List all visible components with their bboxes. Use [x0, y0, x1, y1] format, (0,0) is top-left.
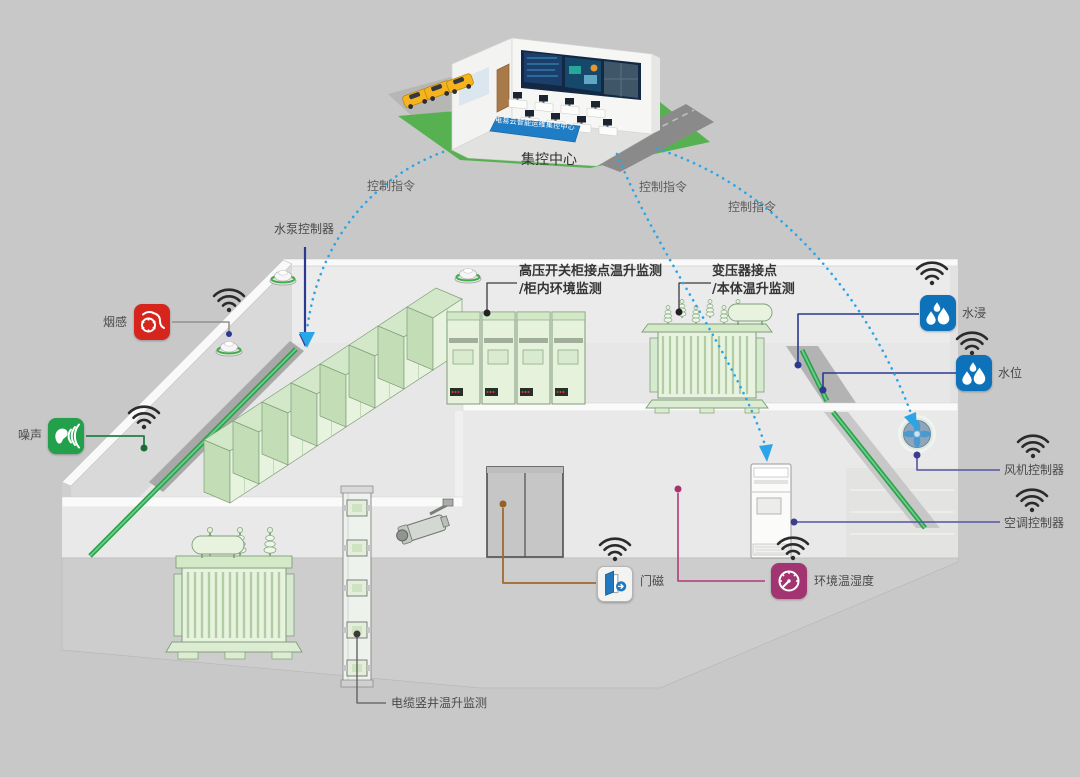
noise-label: 噪声 — [18, 428, 42, 443]
door-magnet-label: 门磁 — [640, 574, 664, 589]
room-door — [487, 467, 563, 557]
platform-step — [455, 411, 463, 507]
smoke-icon — [134, 304, 170, 340]
ear-sound-waves-icon — [48, 418, 84, 454]
command-label-left: 控制指令 — [367, 179, 415, 194]
ac-controller-label: 空调控制器 — [1004, 516, 1064, 531]
gauge-icon — [771, 563, 807, 599]
control-center-label: 集控中心 — [521, 152, 577, 170]
noise-icon — [48, 418, 84, 454]
smoke-label: 烟感 — [103, 315, 127, 330]
switchgear-monitoring-label: 高压开关柜接点温升监测 /柜内环境监测 — [519, 263, 662, 299]
water-drops-icon — [920, 295, 956, 331]
wifi-icon — [1017, 490, 1047, 513]
open-door-arrow-icon — [598, 567, 632, 601]
building-door — [497, 64, 509, 112]
command-label-right: 控制指令 — [728, 200, 776, 215]
water-drops-icon — [956, 355, 992, 391]
fan-blades-icon — [900, 417, 935, 452]
transformer-monitoring-line2: /本体温升监测 — [712, 281, 795, 299]
env-temp-humidity-icon — [771, 563, 807, 599]
smoke-swirl-icon — [134, 304, 170, 340]
ac-unit — [751, 464, 791, 558]
building-right-edge — [652, 54, 660, 134]
cable-shaft-monitoring-label: 电缆竖井温升监测 — [391, 696, 487, 711]
wifi-icon — [957, 333, 987, 356]
transformer-monitoring-line1: 变压器接点 — [712, 263, 795, 281]
water-level-label: 水位 — [998, 366, 1022, 381]
water-pump-controller-label: 水泵控制器 — [274, 222, 334, 237]
flood-label: 水浸 — [962, 306, 986, 321]
switchgear-monitoring-line2: /柜内环境监测 — [519, 281, 662, 299]
platform-edge-band-left — [62, 497, 463, 507]
command-label-middle: 控制指令 — [639, 180, 687, 195]
fan-controller-label: 风机控制器 — [1004, 463, 1064, 478]
switchgear-monitoring-line1: 高压开关柜接点温升监测 — [519, 263, 662, 281]
transformer-monitoring-label: 变压器接点 /本体温升监测 — [712, 263, 795, 299]
door-magnet-icon — [597, 566, 633, 602]
flood-icon — [920, 295, 956, 331]
wifi-icon — [1018, 436, 1048, 459]
smart-substation-monitoring-diagram: 集控中心 电易云智能运维集控中心 控制指令 控制指令 控制指令 水泵控制器 高压… — [0, 0, 1080, 777]
isometric-scene — [0, 0, 1080, 777]
env-temp-humidity-label: 环境温湿度 — [814, 574, 874, 589]
water-level-icon — [956, 355, 992, 391]
